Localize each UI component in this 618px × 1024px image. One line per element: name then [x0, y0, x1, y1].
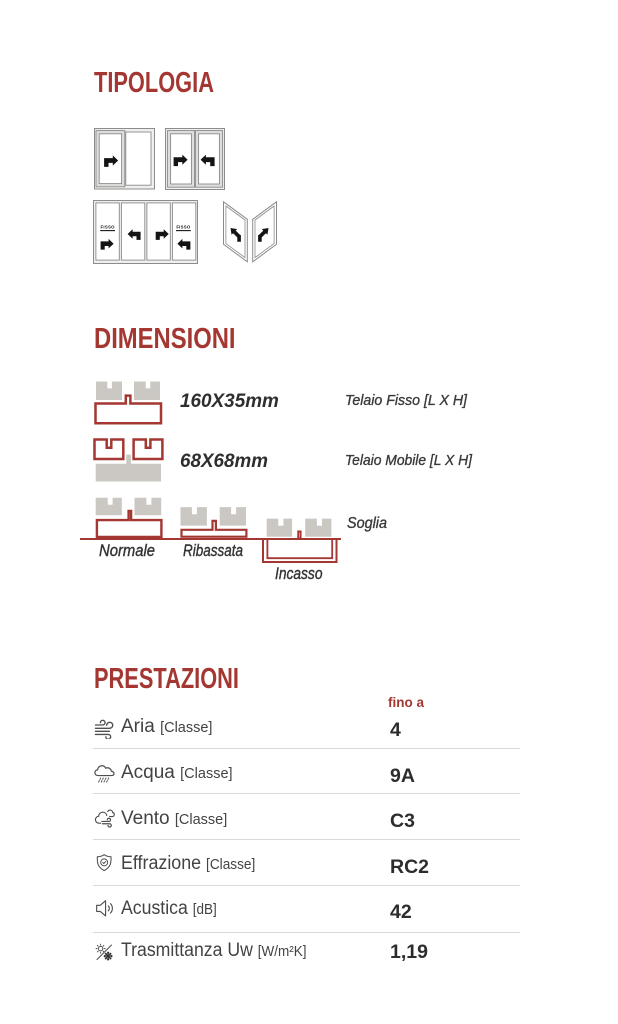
- svg-text:FISSO: FISSO: [101, 225, 116, 230]
- svg-text:FISSO: FISSO: [176, 225, 191, 230]
